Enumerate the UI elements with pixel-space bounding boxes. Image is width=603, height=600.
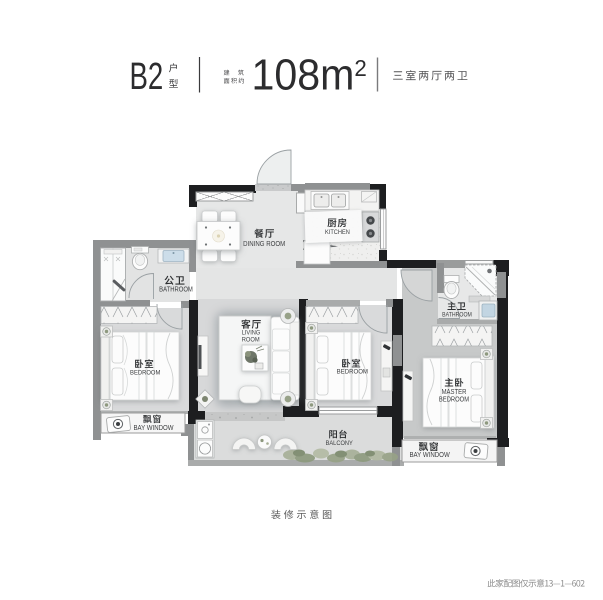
- svg-text:BAY WINDOW: BAY WINDOW: [409, 452, 450, 459]
- svg-text:BATHROOM: BATHROOM: [159, 286, 193, 293]
- svg-text:BEDROOM: BEDROOM: [439, 397, 469, 404]
- svg-text:BEDROOM: BEDROOM: [337, 368, 369, 375]
- svg-text:LIVING: LIVING: [242, 330, 261, 337]
- svg-text:BEDROOM: BEDROOM: [130, 369, 161, 376]
- svg-text:ROOM: ROOM: [242, 337, 260, 344]
- svg-text:BALCONY: BALCONY: [326, 440, 354, 447]
- svg-text:BAY WINDOW: BAY WINDOW: [134, 425, 174, 432]
- svg-text:108m2: 108m2: [252, 50, 367, 98]
- svg-text:KITCHEN: KITCHEN: [325, 229, 350, 236]
- svg-text:DINING ROOM: DINING ROOM: [243, 239, 285, 248]
- svg-text:MASTER: MASTER: [442, 389, 467, 396]
- svg-text:B2: B2: [130, 56, 164, 98]
- svg-text:BATHROOM: BATHROOM: [442, 312, 472, 319]
